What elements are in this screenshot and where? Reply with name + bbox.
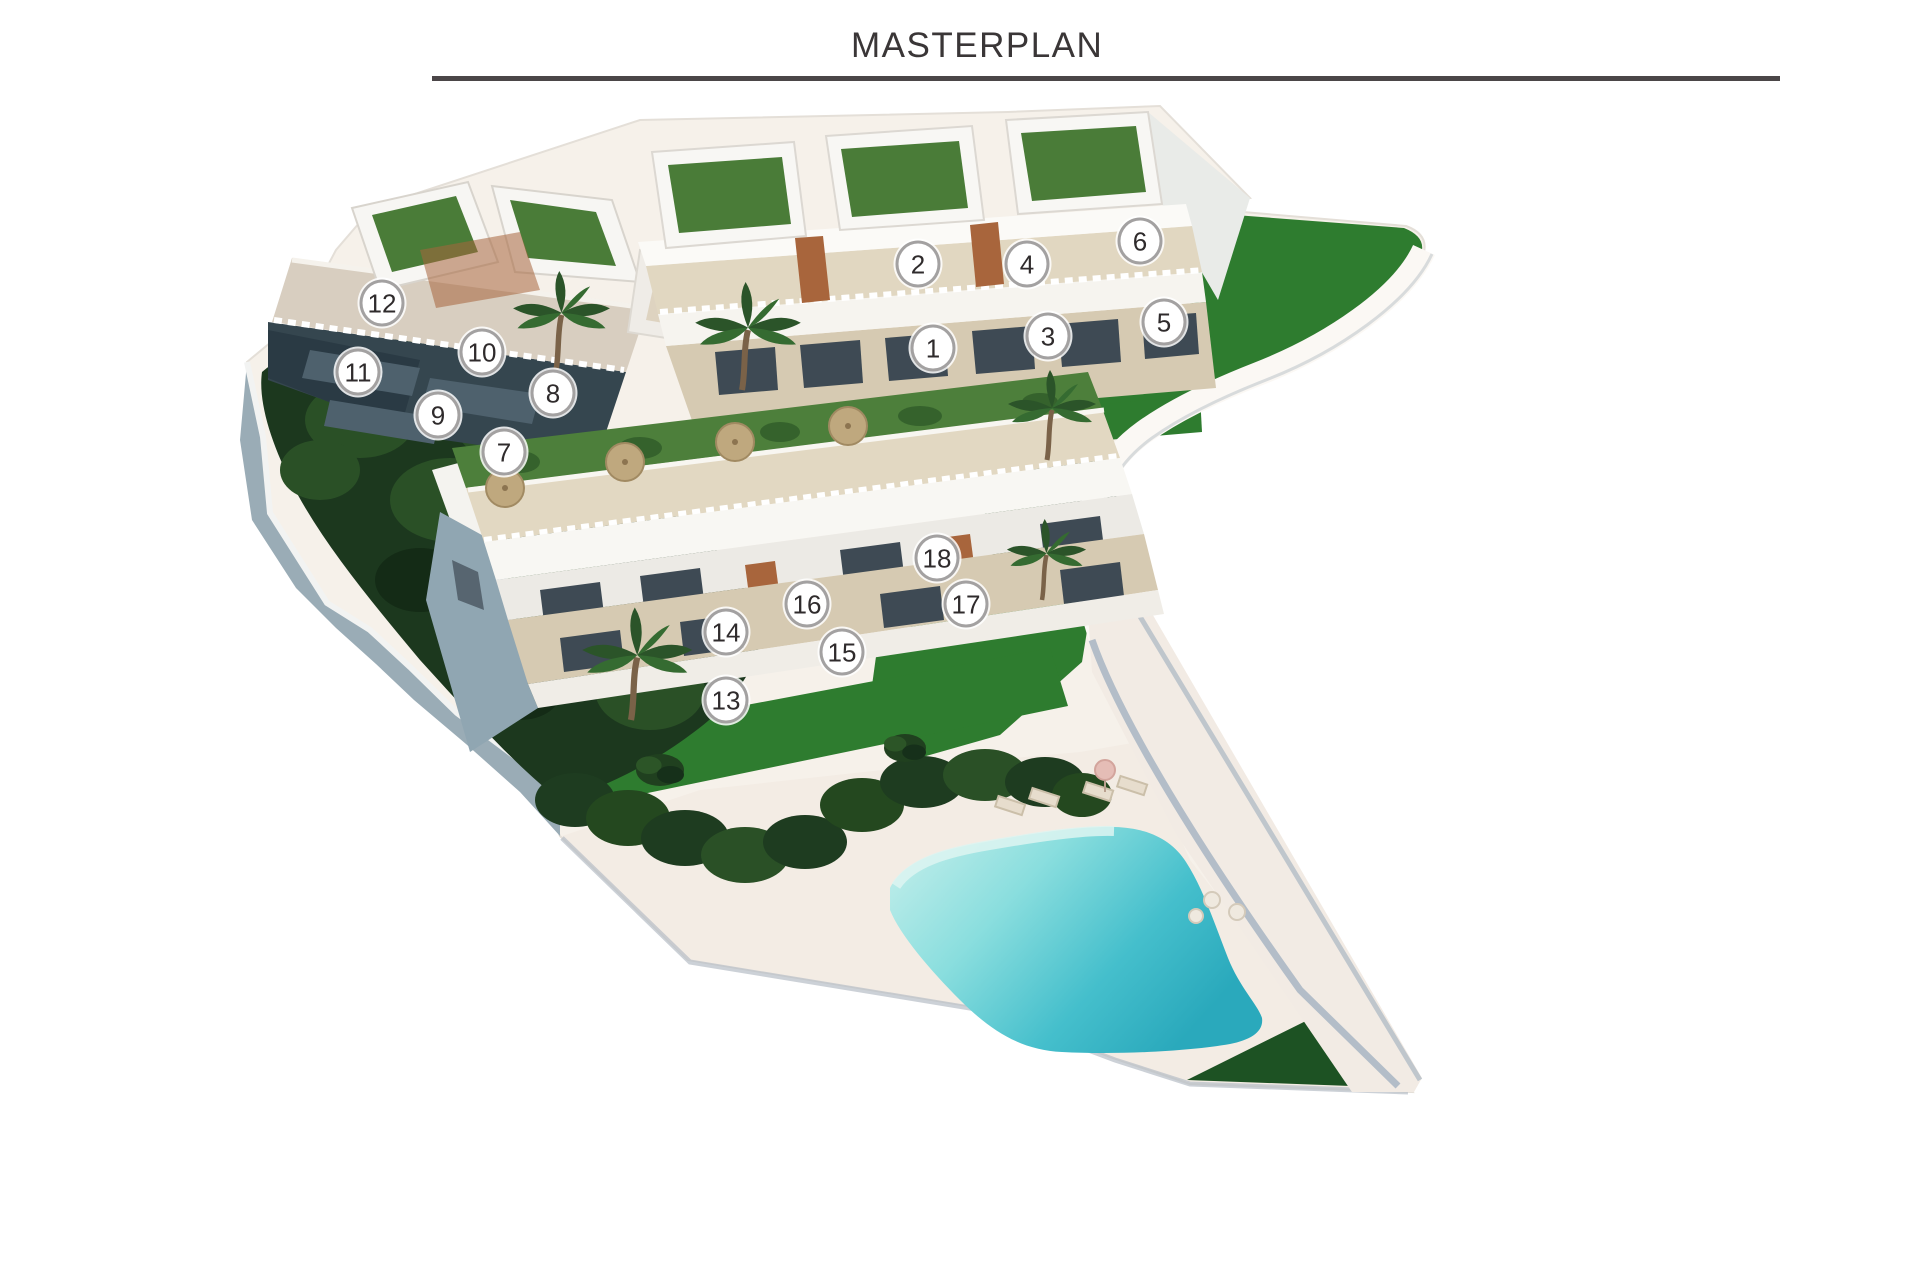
unit-marker-17[interactable]: 17 [944, 581, 989, 628]
unit-marker-14[interactable]: 14 [704, 609, 749, 656]
unit-marker-number: 5 [1157, 309, 1171, 335]
unit-marker-number: 6 [1133, 228, 1147, 254]
unit-marker-number: 15 [828, 639, 857, 665]
unit-marker-number: 18 [923, 545, 952, 571]
unit-marker-4[interactable]: 4 [1005, 241, 1050, 288]
site-plan-illustration [0, 0, 1920, 1280]
unit-marker-number: 13 [712, 687, 741, 713]
unit-marker-12[interactable]: 12 [360, 280, 405, 327]
unit-marker-11[interactable]: 11 [336, 349, 381, 396]
unit-marker-number: 9 [431, 402, 445, 428]
unit-marker-number: 14 [712, 619, 741, 645]
unit-marker-5[interactable]: 5 [1142, 299, 1187, 346]
unit-marker-3[interactable]: 3 [1026, 313, 1071, 360]
unit-marker-number: 7 [497, 439, 511, 465]
masterplan-page: MASTERPLAN [0, 0, 1920, 1280]
unit-marker-1[interactable]: 1 [911, 325, 956, 372]
unit-marker-18[interactable]: 18 [915, 535, 960, 582]
unit-marker-number: 3 [1041, 323, 1055, 349]
unit-marker-number: 8 [546, 380, 560, 406]
unit-marker-number: 4 [1020, 251, 1034, 277]
unit-marker-15[interactable]: 15 [820, 629, 865, 676]
unit-marker-16[interactable]: 16 [785, 581, 830, 628]
unit-marker-number: 2 [911, 251, 925, 277]
unit-marker-7[interactable]: 7 [482, 429, 527, 476]
building-a [638, 112, 1250, 432]
unit-marker-number: 12 [368, 290, 397, 316]
unit-marker-6[interactable]: 6 [1118, 218, 1163, 265]
unit-marker-number: 17 [952, 591, 981, 617]
unit-marker-13[interactable]: 13 [704, 677, 749, 724]
unit-marker-9[interactable]: 9 [416, 392, 461, 439]
unit-marker-number: 1 [926, 335, 940, 361]
unit-marker-number: 10 [468, 339, 497, 365]
unit-marker-10[interactable]: 10 [460, 329, 505, 376]
unit-marker-number: 11 [345, 359, 372, 385]
unit-marker-number: 16 [793, 591, 822, 617]
unit-marker-2[interactable]: 2 [896, 241, 941, 288]
unit-marker-8[interactable]: 8 [531, 370, 576, 417]
